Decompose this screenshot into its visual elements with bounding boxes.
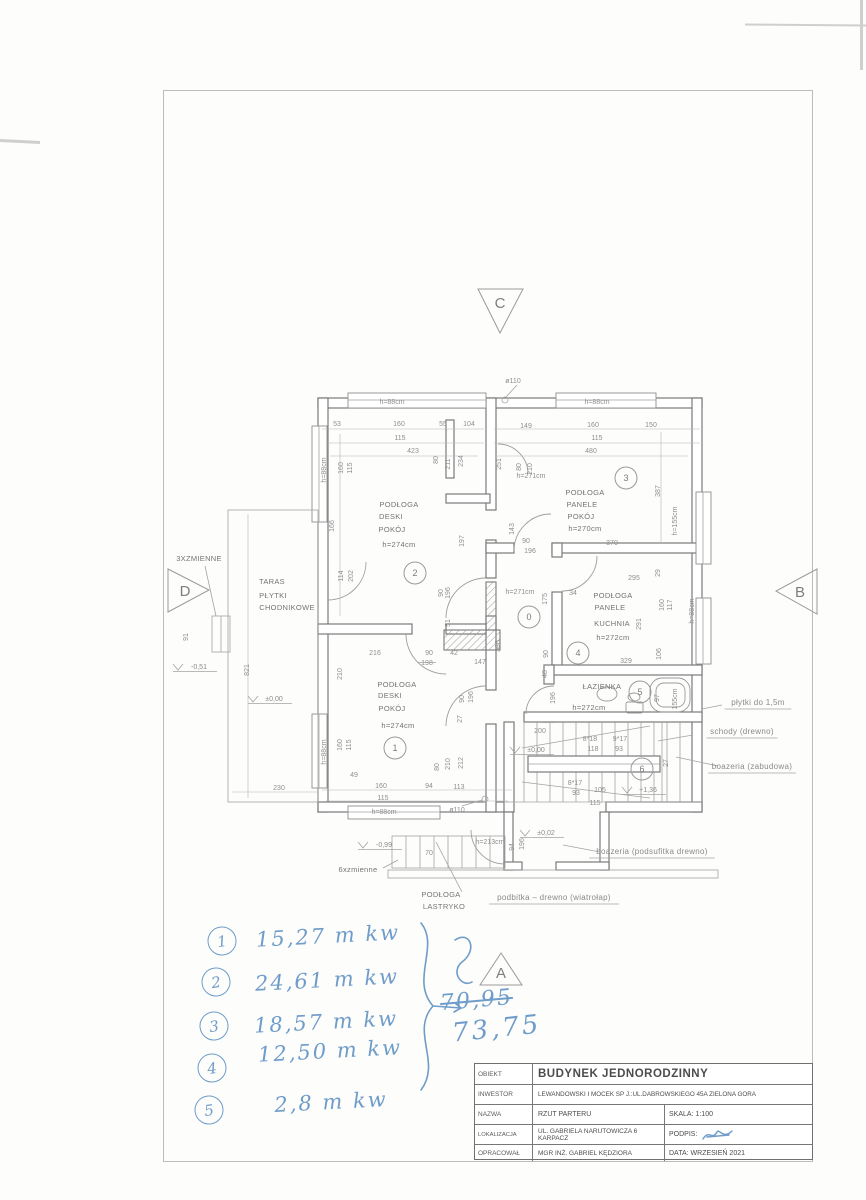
title-block: OBIEKT BUDYNEK JEDNORODZINNY INWESTOR LE…: [474, 1063, 813, 1160]
skala-label: SKALA:: [669, 1111, 694, 1118]
titleblock-label-opracowal: OPRACOWAŁ: [475, 1145, 533, 1161]
titleblock-label-inwestor: INWESTOR: [475, 1085, 533, 1104]
titleblock-skala: SKALA: 1:100: [664, 1105, 812, 1124]
signature: [699, 1127, 737, 1143]
skala-value: 1:100: [695, 1111, 713, 1118]
titleblock-label-nazwa: NAZWA: [475, 1105, 533, 1124]
handwritten-brace: [0, 0, 866, 1200]
scanned-floor-plan-page: CABD ø110h=88cmh=88cm5316055104115423802…: [0, 0, 866, 1200]
titleblock-value-nazwa: RZUT PARTERU: [533, 1105, 664, 1124]
titleblock-value-inwestor: LEWANDOWSKI I MOCEK SP J.:UL.DABROWSKIEG…: [533, 1085, 812, 1104]
data-value: WRZESIEŃ 2021: [691, 1150, 745, 1157]
titleblock-value-obiekt: BUDYNEK JEDNORODZINNY: [533, 1064, 812, 1084]
titleblock-label-obiekt: OBIEKT: [475, 1064, 533, 1084]
titleblock-data: DATA: WRZESIEŃ 2021: [664, 1145, 812, 1161]
titleblock-podpis: PODPIS:: [664, 1125, 812, 1144]
titleblock-value-opracowal: MGR INŻ. GABRIEL KĘDZIORA: [533, 1145, 664, 1161]
podpis-label: PODPIS:: [669, 1131, 697, 1138]
data-label: DATA:: [669, 1150, 689, 1157]
titleblock-value-lokalizacja: UL. GABRIELA NARUTOWICZA 6 KARPACZ: [533, 1125, 664, 1144]
titleblock-label-lokalizacja: LOKALIZACJA: [475, 1125, 533, 1144]
